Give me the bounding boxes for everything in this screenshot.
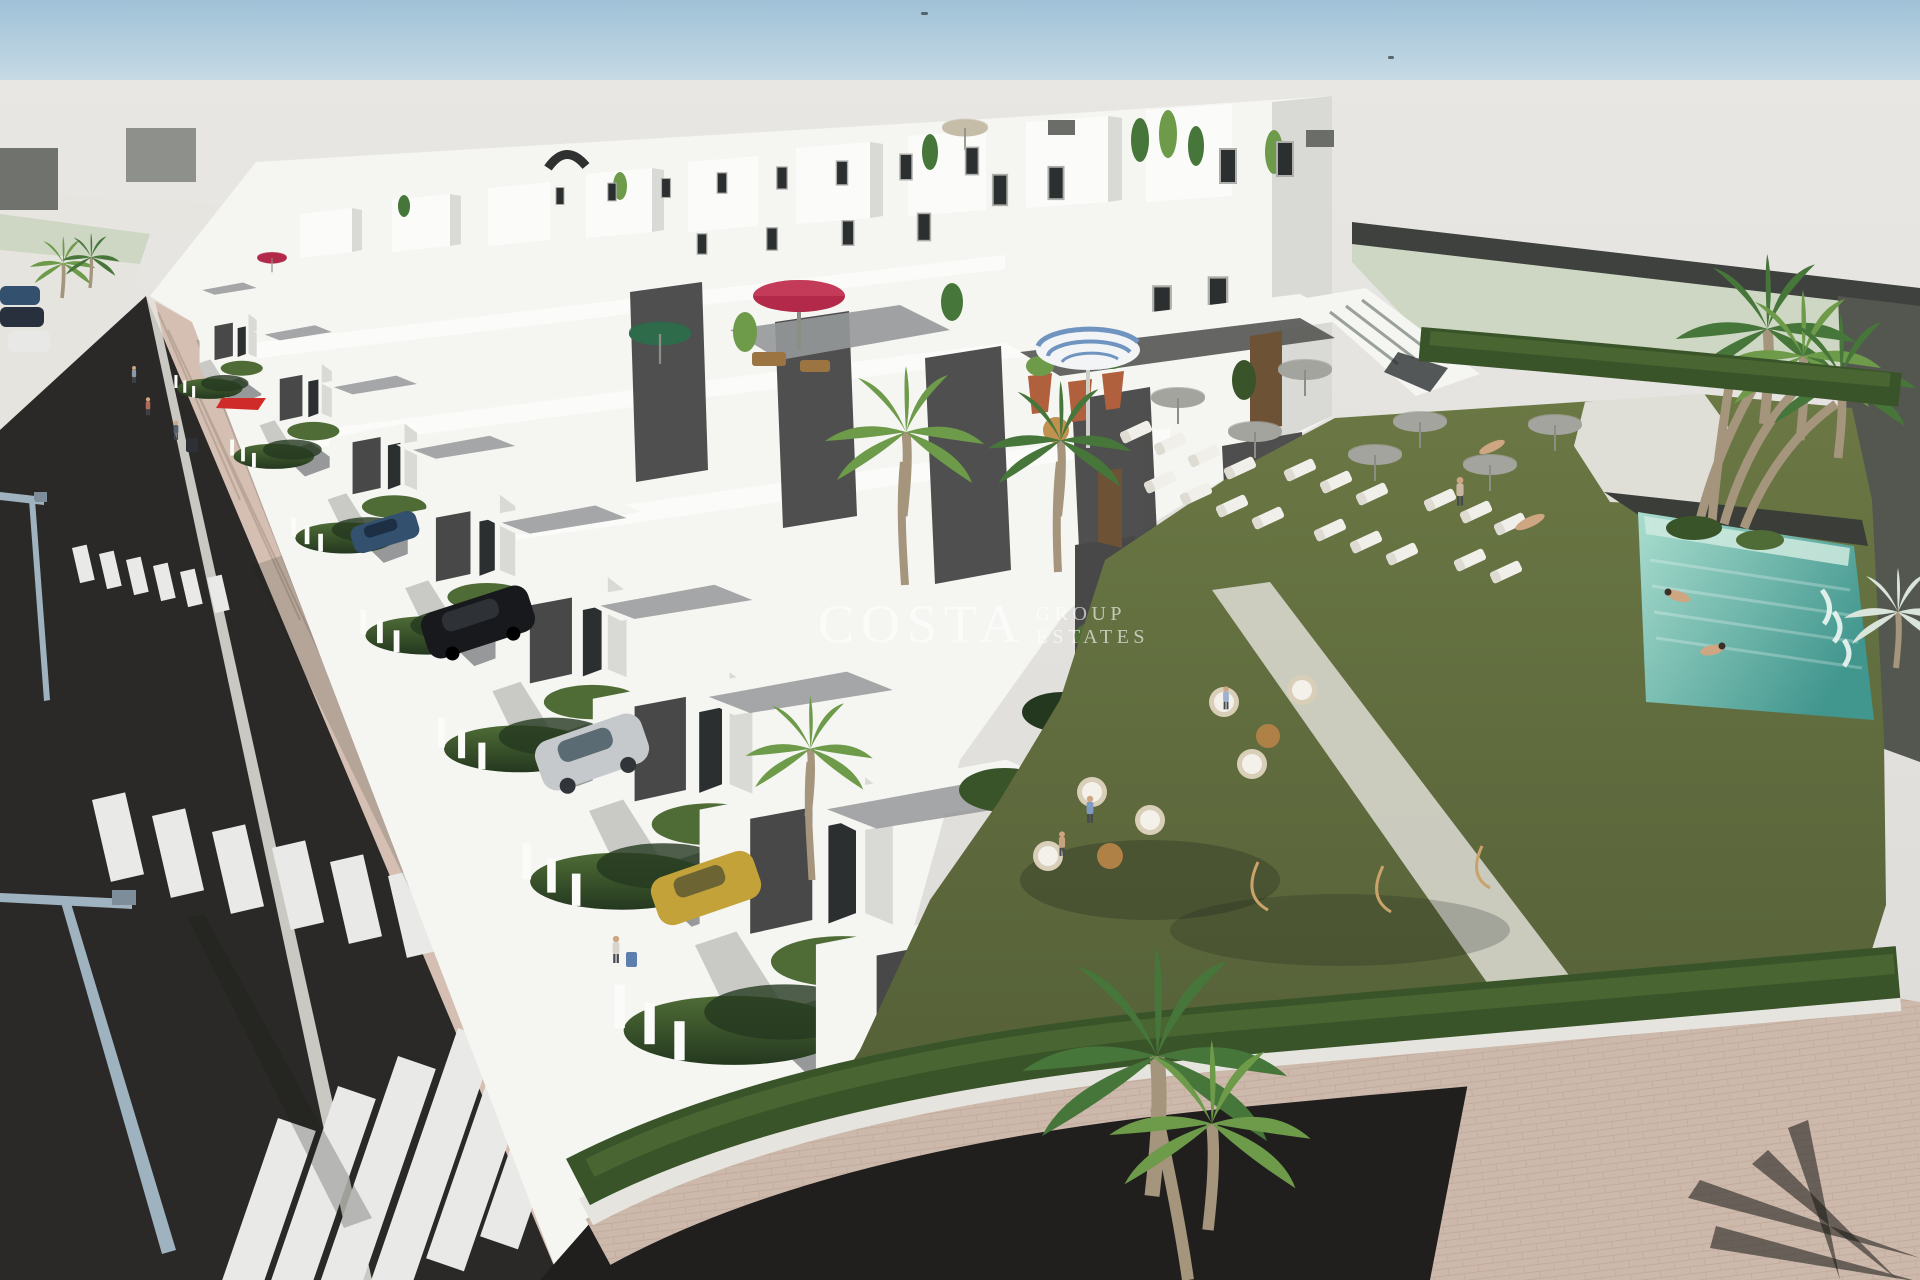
flower-bed-red (216, 398, 266, 410)
sky (0, 0, 1920, 80)
parked-car-blue (0, 286, 40, 305)
render-image: COSTA GROUP ESTATES (0, 0, 1920, 1280)
parked-car-dark (0, 307, 44, 327)
parked-car-white (8, 331, 50, 352)
umbrella-striped (1036, 329, 1140, 370)
render-scene (0, 0, 1920, 1280)
